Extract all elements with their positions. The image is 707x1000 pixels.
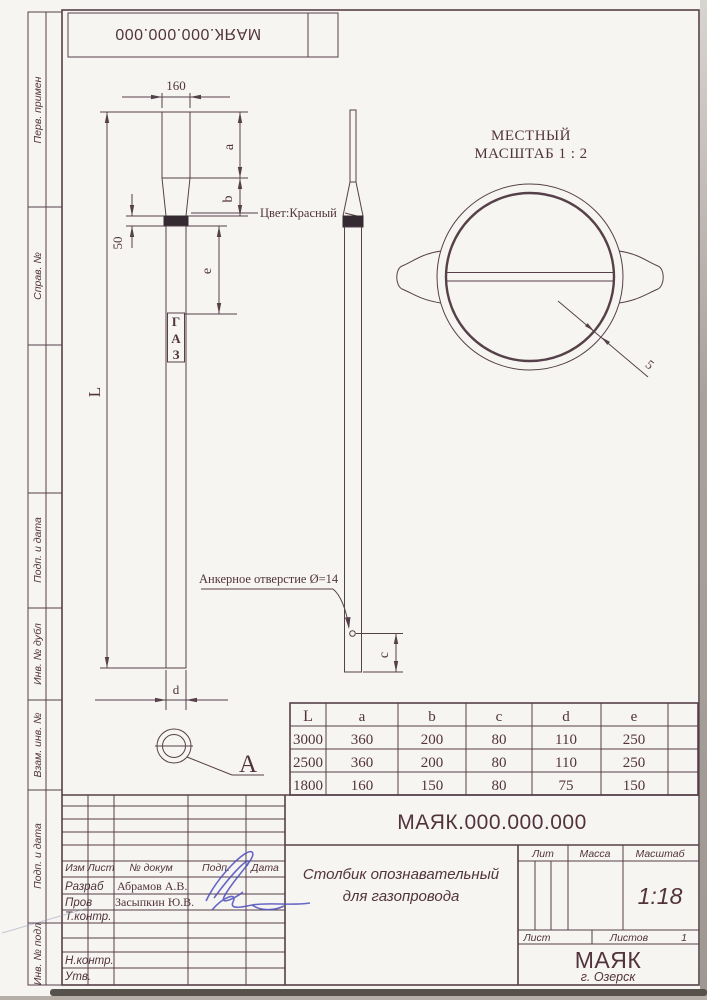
table-cell: 3000 [293, 732, 323, 748]
table-header: a [359, 709, 366, 725]
dim-c: c [377, 652, 392, 658]
gaz-letter: А [171, 331, 181, 346]
dim-d: d [173, 682, 180, 697]
top-stamp: МАЯК.000.000.000 [68, 13, 338, 57]
role-razrab: Разраб [65, 881, 104, 893]
mass-label: Масса [579, 848, 610, 860]
right-wing [619, 251, 663, 303]
local-scale-title: МЕСТНЫЙ [491, 127, 571, 144]
table-cell: 360 [351, 732, 374, 748]
margin-label: Инв. № подл [32, 923, 44, 985]
margin-label: Взам. инв. № [32, 713, 44, 778]
margin-label: Подп. и дата [32, 517, 44, 583]
dim-160: 160 [166, 78, 186, 93]
table-header: b [428, 709, 436, 725]
anchor-hole [350, 631, 356, 637]
signatures [206, 852, 310, 910]
drawing-sheet: Перв. примен Справ. № Подп. и дата Инв. … [0, 0, 707, 1000]
table-cell: 80 [492, 755, 507, 771]
table-cell: 75 [559, 778, 574, 794]
anchor-note: Анкерное отверстие Ø=14 [199, 572, 339, 586]
role-prov: Пров [65, 897, 92, 909]
lit-label: Лит [531, 848, 554, 860]
role-nkontr: Н.контр. [65, 955, 114, 967]
dim-wall-5: 5 [643, 357, 658, 373]
margin-label: Справ. № [32, 252, 44, 300]
red-band-side [343, 216, 363, 227]
dim-a: a [222, 143, 237, 150]
rev-header-list: Лист [86, 862, 114, 874]
title-block: Изм Лист № докум Подп. Дата Лит Масса Ма… [62, 795, 699, 985]
detail-a-callout: А [155, 729, 264, 778]
size-table: L a b c d e 3000 360 200 80 110 250 2500… [290, 703, 698, 795]
local-scale-view: МЕСТНЫЙ МАСШТАБ 1 : 2 5 [397, 127, 664, 377]
signature-prov [212, 896, 310, 910]
dim-b: b [221, 196, 236, 203]
table-cell: 360 [351, 755, 374, 771]
margin-label: Инв. № дубл [32, 623, 44, 685]
role-utv: Утв. [64, 971, 91, 983]
scale-value: 1:18 [638, 883, 683, 909]
margin-labels: Перв. примен Справ. № Подп. и дата Инв. … [32, 76, 44, 985]
front-view: Г А З [162, 112, 190, 668]
name-razrab: Абрамов А.В. [117, 879, 187, 893]
name-prov: Засыпкин Ю.В. [115, 895, 194, 909]
gost-drawing: Перв. примен Справ. № Подп. и дата Инв. … [0, 0, 707, 1000]
side-view: c Анкерное отверстие Ø=14 [199, 110, 403, 672]
scale-label: Масштаб [635, 848, 685, 860]
table-cell: 80 [492, 732, 507, 748]
gaz-letter: Г [172, 314, 180, 329]
table-cell: 200 [421, 755, 444, 771]
doc-number: МАЯК.000.000.000 [397, 811, 587, 834]
dim-e: e [200, 268, 215, 274]
sheet-label: Лист [522, 932, 550, 944]
company-city: г. Озерск [581, 970, 637, 984]
margin-label: Подп. и дата [32, 823, 44, 889]
table-cell: 2500 [293, 755, 323, 771]
sheets-label: Листов [609, 932, 649, 944]
top-stamp-code: МАЯК.000.000.000 [115, 25, 261, 42]
dim-50: 50 [110, 237, 125, 250]
rev-header-dokum: № докум [129, 862, 172, 874]
sheets-value: 1 [681, 932, 687, 944]
signature-prov [252, 905, 284, 910]
table-cell: 250 [623, 755, 646, 771]
table-cell: 150 [623, 778, 646, 794]
table-header: c [496, 709, 503, 725]
table-cell: 200 [421, 732, 444, 748]
table-cell: 160 [351, 778, 374, 794]
scan-edge-bottom-light [0, 996, 707, 1000]
table-cell: 110 [555, 732, 577, 748]
table-header: d [562, 709, 570, 725]
margin-label: Перв. примен [32, 76, 44, 143]
rev-header-izm: Изм [65, 862, 84, 874]
table-cell: 80 [492, 778, 507, 794]
scan-edge-right [700, 0, 707, 1000]
dim-L: L [85, 387, 104, 397]
detail-a-label: А [239, 751, 257, 778]
table-cell: 1800 [293, 778, 323, 794]
table-cell: 250 [623, 732, 646, 748]
local-scale-title: МАСШТАБ 1 : 2 [474, 146, 587, 162]
product-title: Столбик опознавательный [303, 866, 500, 883]
table-cell: 110 [555, 755, 577, 771]
front-view-dimensions: 160 L a b 50 e [85, 78, 357, 710]
rev-header-data: Дата [250, 862, 279, 874]
table-header: L [303, 708, 313, 725]
color-note: Цвет:Красный [260, 206, 337, 220]
product-title: для газопровода [343, 888, 460, 905]
sheet-frame [28, 10, 699, 985]
gaz-letter: З [173, 347, 180, 362]
table-cell: 150 [421, 778, 444, 794]
table-header: e [631, 709, 638, 725]
left-wing [397, 251, 441, 303]
red-band [164, 216, 188, 226]
scan-edge-bottom [50, 989, 707, 996]
